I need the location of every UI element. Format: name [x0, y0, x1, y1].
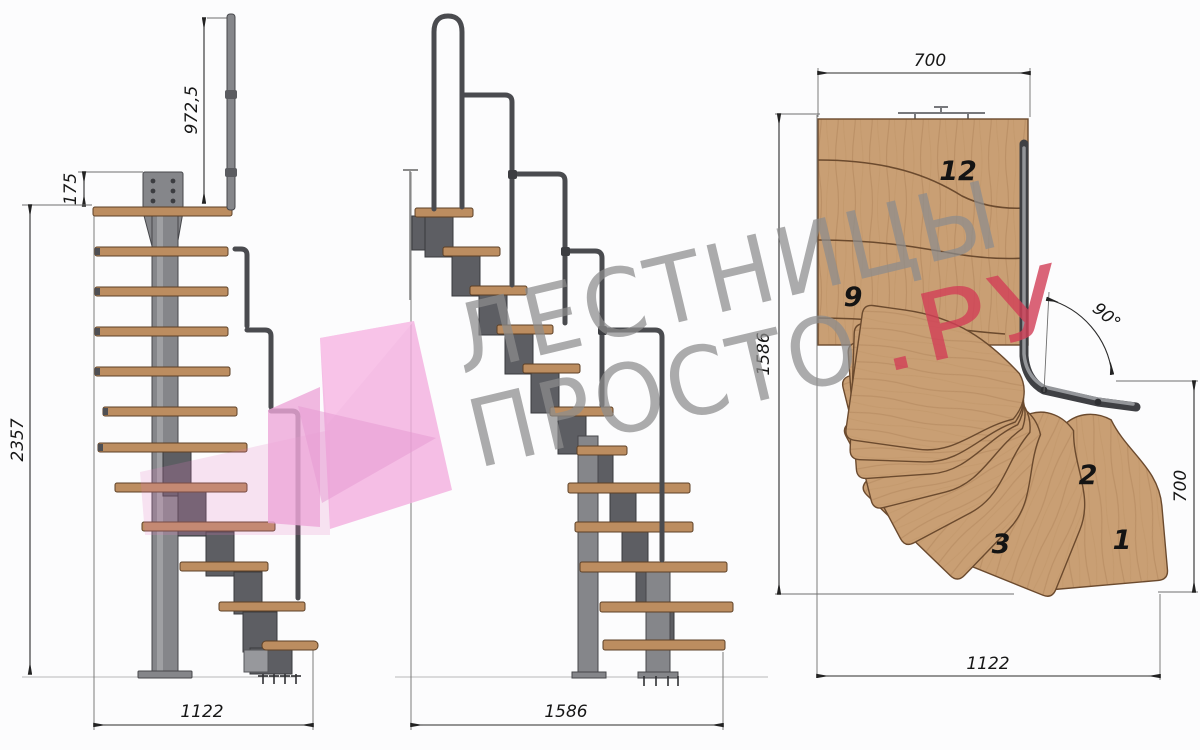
dim-plate-offset: 175	[61, 173, 81, 205]
tread	[415, 208, 473, 217]
dim-handrail-height: 972,5	[182, 86, 202, 135]
step-label-1: 1	[1113, 525, 1132, 556]
dim-top-width: 700	[914, 51, 946, 71]
post-connector	[225, 90, 237, 99]
rail-connector	[561, 247, 570, 256]
column-base-plate	[138, 671, 192, 678]
tread	[95, 247, 228, 256]
tread	[603, 640, 725, 650]
dim-turn-angle: 90°	[1088, 299, 1124, 334]
column-base-plate	[572, 672, 606, 678]
tread	[580, 562, 727, 572]
handrail-loop	[434, 16, 462, 209]
dim-total-height: 2357	[8, 418, 28, 461]
tread	[568, 483, 690, 493]
tread	[180, 562, 268, 571]
dim-footprint-depth: 1122	[180, 702, 223, 722]
tread	[103, 407, 237, 416]
tread	[443, 247, 500, 256]
tread	[95, 367, 230, 376]
tread	[98, 443, 247, 452]
rail-joint	[1095, 399, 1102, 406]
tread	[600, 602, 733, 612]
step-label-3: 3	[992, 529, 1011, 560]
handrail-post	[227, 14, 235, 210]
dim-right-height: 700	[1171, 470, 1191, 502]
rail-connector	[508, 170, 517, 179]
tread	[95, 287, 228, 296]
side-elevation-view: 972,5 175 2357 1122	[8, 14, 318, 730]
dim-footprint-width: 1586	[544, 702, 587, 722]
tread	[93, 207, 232, 216]
tread	[219, 602, 305, 611]
dim-bottom-width: 1122	[966, 654, 1009, 674]
tread	[262, 641, 318, 650]
staircase-technical-drawing: 972,5 175 2357 1122	[0, 0, 1200, 750]
drawing-canvas: 972,5 175 2357 1122	[0, 0, 1200, 750]
support-column	[646, 562, 670, 674]
tread	[95, 327, 228, 336]
wall-mount-plate	[143, 172, 183, 208]
anchor-bolts	[258, 674, 301, 684]
post-connector	[225, 168, 237, 177]
tread	[575, 522, 693, 532]
support-column	[578, 436, 598, 674]
step-label-2: 2	[1079, 460, 1098, 491]
